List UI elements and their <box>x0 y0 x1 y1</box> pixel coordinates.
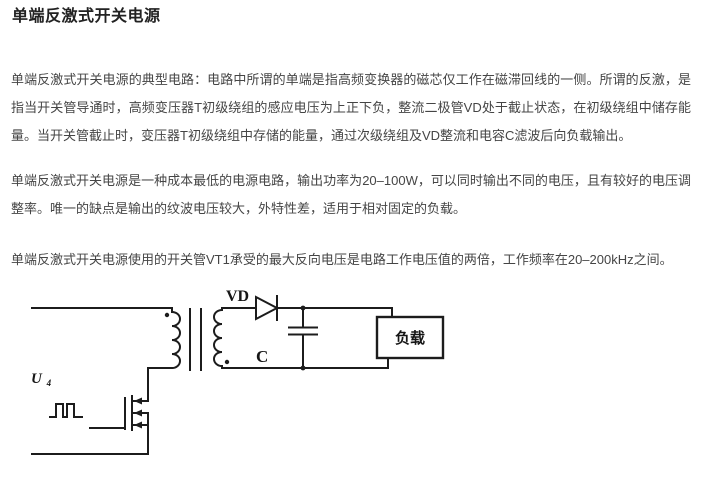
mosfet-arrow-top <box>134 398 142 405</box>
mosfet-symbol <box>90 396 148 430</box>
paragraph-typical-circuit: 单端反激式开关电源的典型电路：电路中所谓的单端是指高频变换器的磁芯仅工作在磁滞回… <box>11 66 691 150</box>
output-top-wire <box>277 308 392 317</box>
diode-triangle <box>256 297 277 319</box>
input-voltage-subscript: 4 <box>46 378 52 388</box>
circuit-diagram-figure: VD C 负载 U 4 <box>28 282 498 490</box>
paragraph-cost-power: 单端反激式开关电源是一种成本最低的电源电路，输出功率为20–100W，可以同时输… <box>11 167 691 223</box>
load-label: 负载 <box>395 329 425 347</box>
mosfet-arrow-bottom <box>134 422 142 429</box>
primary-to-drain-wire <box>148 368 172 401</box>
article: 单端反激式开关电源 单端反激式开关电源的典型电路：电路中所谓的单端是指高频变换器… <box>0 6 702 274</box>
flyback-circuit-svg: VD C 负载 U 4 <box>28 282 498 490</box>
input-voltage-label: U 4 <box>31 371 52 388</box>
capacitor-symbol <box>289 308 317 368</box>
secondary-polarity-dot <box>225 360 229 364</box>
diode-symbol <box>256 296 277 320</box>
paragraph-switch-voltage: 单端反激式开关电源使用的开关管VT1承受的最大反向电压是电路工作电压值的两倍，工… <box>11 246 691 274</box>
capacitor-label: C <box>256 347 268 366</box>
diode-label: VD <box>226 288 249 305</box>
page-title: 单端反激式开关电源 <box>12 6 691 28</box>
junction-dot-top <box>301 306 306 311</box>
primary-polarity-dot <box>165 313 169 317</box>
capacitor-plates <box>289 328 317 335</box>
input-top-rail <box>32 308 172 312</box>
transformer-core-lines <box>190 309 201 370</box>
mosfet-arrow-middle <box>134 410 142 417</box>
input-bottom-rail <box>32 413 148 454</box>
output-bottom-wire <box>222 358 388 368</box>
pulse-waveform <box>50 404 82 417</box>
transformer-secondary-winding <box>214 308 222 368</box>
input-voltage-symbol: U <box>31 371 43 387</box>
transformer-primary-winding <box>172 312 180 368</box>
